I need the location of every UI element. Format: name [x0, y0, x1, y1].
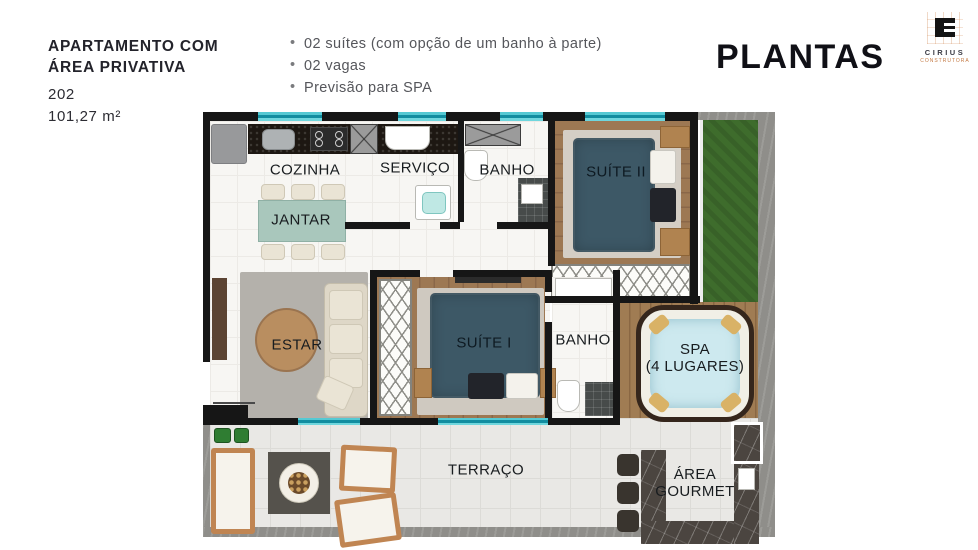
- apartment-title-line2: ÁREA PRIVATIVA: [48, 57, 218, 78]
- cirius-logo-grid-icon: [927, 12, 963, 44]
- window: [585, 112, 665, 121]
- feature-item: •Previsão para SPA: [288, 77, 602, 99]
- feature-text: 02 vagas: [304, 58, 366, 74]
- decor-plate: [279, 463, 319, 503]
- gourmet-sink: [738, 468, 755, 490]
- slide: APARTAMENTO COM ÁREA PRIVATIVA 202 101,2…: [0, 0, 978, 550]
- unit-area: 101,27 m²: [48, 106, 218, 128]
- kitchen-cabinet: [350, 124, 378, 154]
- grill-station: [731, 422, 763, 464]
- gourmet-label-line1: ÁREA: [655, 466, 734, 483]
- wall: [453, 270, 552, 277]
- bullet-icon: •: [290, 76, 295, 98]
- decor-plate-center: [288, 472, 310, 494]
- unit-number: 202: [48, 84, 218, 106]
- gourmet-counter-right: [734, 450, 759, 544]
- room-label-banho2: BANHO: [555, 332, 610, 349]
- room-label-suite2: SUÍTE II: [586, 164, 646, 181]
- tv-console: [212, 278, 227, 360]
- suite2-nightstand: [660, 126, 690, 148]
- suite1-pillow: [506, 373, 538, 399]
- room-label-terraco: TERRAÇO: [448, 462, 524, 479]
- stove: [310, 127, 348, 151]
- room-label-banho1: BANHO: [479, 162, 534, 179]
- apartment-title-block: APARTAMENTO COM ÁREA PRIVATIVA 202 101,2…: [48, 36, 218, 128]
- room-label-area-gourmet: ÁREA GOURMET: [655, 466, 734, 500]
- feature-list: •02 suítes (com opção de um banho à part…: [288, 33, 602, 99]
- wall: [545, 277, 552, 292]
- bar-stool: [617, 454, 639, 476]
- window: [398, 112, 446, 121]
- banho1-shower: [465, 124, 521, 146]
- terrace-armchair: [339, 445, 397, 494]
- floor-plan: COZINHA SERVIÇO BANHO SUÍTE II JANTAR ES…: [203, 112, 775, 537]
- dining-chair: [261, 244, 285, 260]
- spa-label-line1: SPA: [646, 341, 745, 358]
- suite1-pillow: [468, 373, 504, 399]
- wall: [690, 112, 698, 304]
- wall: [613, 270, 620, 418]
- dining-chair: [321, 244, 345, 260]
- room-label-estar: ESTAR: [272, 337, 323, 354]
- room-label-servico: SERVIÇO: [380, 160, 450, 177]
- fridge: [211, 124, 247, 164]
- window: [500, 112, 543, 121]
- wall: [203, 112, 210, 362]
- terrace-bench: [211, 448, 255, 534]
- gourmet-label-line2: GOURMET: [655, 483, 734, 500]
- bullet-icon: •: [290, 54, 295, 76]
- feature-item: •02 suítes (com opção de um banho à part…: [288, 33, 602, 55]
- concrete-edge-right: [758, 112, 775, 537]
- wall: [203, 418, 298, 425]
- logo-name: CIRIUS: [919, 48, 971, 57]
- wall: [545, 322, 552, 418]
- concrete-edge-top-right: [690, 112, 760, 120]
- banho1-sink: [521, 184, 543, 204]
- dining-chair: [291, 244, 315, 260]
- banho2-shower: [585, 382, 613, 416]
- room-label-suite1: SUÍTE I: [456, 335, 511, 352]
- potted-plant: [234, 428, 249, 443]
- room-label-spa: SPA (4 LUGARES): [646, 341, 745, 375]
- window: [258, 112, 322, 121]
- room-label-cozinha: COZINHA: [270, 162, 340, 179]
- closet-suite1: [379, 279, 412, 416]
- page-title: PLANTAS: [716, 38, 885, 77]
- bar-stool: [617, 482, 639, 504]
- cirius-logo-glyph-icon: [935, 18, 955, 37]
- spa-label-line2: (4 LUGARES): [646, 358, 745, 375]
- logo-subtitle: CONSTRUTORA: [919, 58, 971, 64]
- kitchen-sink: [262, 129, 295, 150]
- suite2-pillow: [650, 150, 676, 184]
- laundry-tank: [385, 126, 430, 150]
- feature-item: •02 vagas: [288, 55, 602, 77]
- banho2-toilet: [557, 380, 580, 412]
- dining-chair: [321, 184, 345, 200]
- wall: [548, 121, 555, 266]
- room-label-jantar: JANTAR: [271, 212, 331, 229]
- terrace-armchair: [334, 492, 402, 548]
- cirius-logo: CIRIUS CONSTRUTORA: [919, 12, 971, 64]
- apartment-title-line1: APARTAMENTO COM: [48, 36, 218, 57]
- washing-machine-lid: [422, 192, 446, 214]
- feature-text: 02 suítes (com opção de um banho à parte…: [304, 36, 602, 52]
- suite2-pillow: [650, 188, 676, 222]
- dining-chair: [291, 184, 315, 200]
- dining-chair: [261, 184, 285, 200]
- bar-stool: [617, 510, 639, 532]
- wall: [548, 418, 620, 425]
- feature-text: Previsão para SPA: [304, 80, 432, 96]
- suite2-nightstand: [660, 228, 690, 256]
- wall: [360, 418, 438, 425]
- entry-door-line: [213, 402, 255, 404]
- wall: [497, 222, 550, 229]
- glass-door-suite1: [438, 418, 548, 425]
- wall: [370, 270, 420, 277]
- wall: [458, 121, 464, 222]
- wall: [545, 296, 700, 303]
- concrete-edge-left: [203, 418, 210, 530]
- suite1-nightstand: [414, 368, 432, 398]
- washing-machine: [415, 185, 451, 220]
- suite2-bed: [573, 138, 655, 252]
- wall: [370, 270, 377, 418]
- bullet-icon: •: [290, 32, 295, 54]
- garden-grass: [700, 118, 761, 302]
- potted-plant: [214, 428, 231, 443]
- glass-door-estar: [298, 418, 360, 425]
- terrace-table: [268, 452, 330, 514]
- wall: [440, 222, 460, 229]
- wall: [345, 222, 410, 229]
